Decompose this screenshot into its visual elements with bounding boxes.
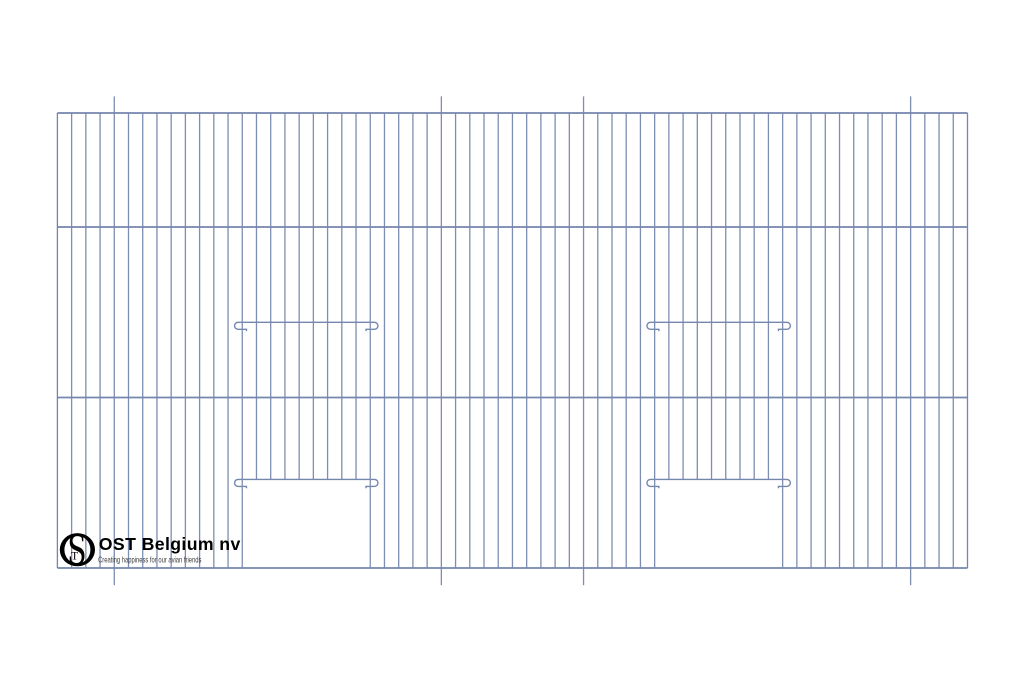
svg-text:OST Belgium nv: OST Belgium nv <box>99 534 241 554</box>
svg-text:T: T <box>71 551 78 563</box>
svg-text:S: S <box>67 524 86 574</box>
svg-text:Creating happiness for our avi: Creating happiness for our avian friends <box>98 555 201 564</box>
